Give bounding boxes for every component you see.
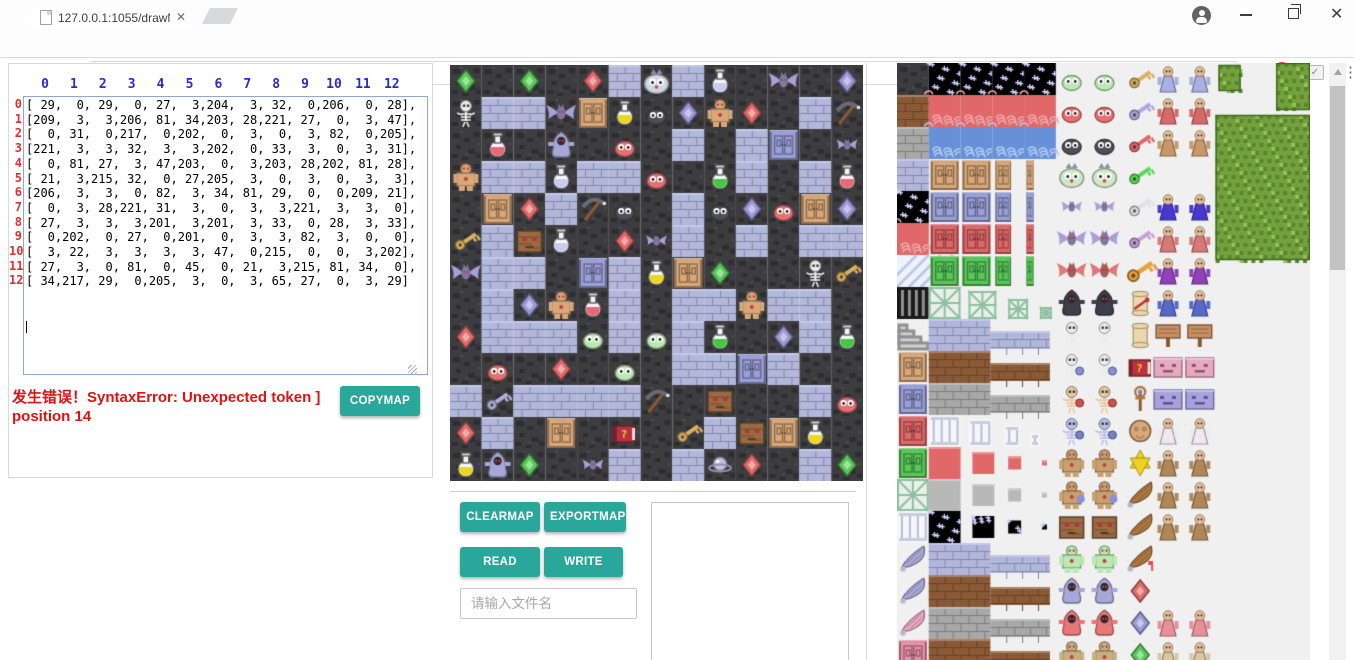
col-header: 9 [291, 77, 319, 92]
window-minimize-button[interactable] [1240, 14, 1252, 16]
clearmap-button[interactable]: CLEARMAP [460, 502, 540, 532]
window-restore-button[interactable] [1288, 8, 1299, 19]
error-message: 发生错误！SyntaxError: Unexpected token ] pos… [12, 388, 356, 426]
row-header: 8 [9, 215, 22, 229]
scrollbar-thumb[interactable] [1330, 86, 1345, 270]
exportmap-button[interactable]: EXPORTMAP [544, 502, 626, 532]
col-header: 7 [233, 77, 261, 92]
divider [866, 63, 867, 660]
col-header: 8 [262, 77, 290, 92]
col-header: 11 [349, 77, 377, 92]
col-header: 12 [378, 77, 406, 92]
browser-window: 127.0.0.1:1055/drawMa ✕ ✕ ← → ⟳ i 127.0.… [0, 0, 1354, 660]
row-header: 10 [9, 244, 22, 258]
text-caret [26, 321, 27, 333]
col-header: 4 [147, 77, 175, 92]
window-close-button[interactable]: ✕ [1330, 4, 1343, 24]
col-header: 2 [89, 77, 117, 92]
tileset-palette-canvas[interactable] [897, 63, 1310, 660]
output-box [651, 502, 849, 660]
divider [450, 491, 856, 492]
row-header: 4 [9, 156, 22, 170]
row-header: 0 [9, 97, 22, 111]
copymap-button[interactable]: COPYMAP [340, 386, 420, 416]
col-header: 10 [320, 77, 348, 92]
row-header: 7 [9, 200, 22, 214]
tab-title: 127.0.0.1:1055/drawMa [58, 11, 170, 25]
col-header: 0 [31, 77, 59, 92]
row-header: 6 [9, 185, 22, 199]
col-header: 5 [176, 77, 204, 92]
filename-input[interactable] [460, 588, 637, 619]
profile-icon[interactable] [1192, 6, 1211, 25]
matrix-textarea[interactable] [23, 96, 428, 375]
new-tab-button[interactable] [202, 8, 238, 24]
tab-close-icon[interactable]: ✕ [176, 10, 186, 24]
map-canvas[interactable] [450, 65, 863, 481]
textarea-resize-handle[interactable] [408, 365, 417, 374]
row-header: 2 [9, 126, 22, 140]
browser-toolbar: ← → ⟳ i 127.0.0.1:1055/drawMapGUI.html ☆… [0, 29, 1354, 58]
row-header: 11 [9, 259, 22, 273]
row-header: 12 [9, 273, 22, 287]
read-button[interactable]: READ [460, 547, 540, 577]
scrollbar-up-arrow-icon[interactable] [1334, 69, 1342, 75]
page-favicon-icon [40, 10, 52, 25]
browser-titlebar: 127.0.0.1:1055/drawMa ✕ ✕ [0, 0, 1354, 29]
col-header: 3 [118, 77, 146, 92]
row-header: 1 [9, 112, 22, 126]
row-header: 3 [9, 141, 22, 155]
col-header: 1 [60, 77, 88, 92]
write-button[interactable]: WRITE [544, 547, 623, 577]
map-matrix-panel: 0123456789101112 0123456789101112 发生错误！S… [8, 63, 433, 478]
row-header: 5 [9, 171, 22, 185]
col-header: 6 [204, 77, 232, 92]
row-header: 9 [9, 229, 22, 243]
